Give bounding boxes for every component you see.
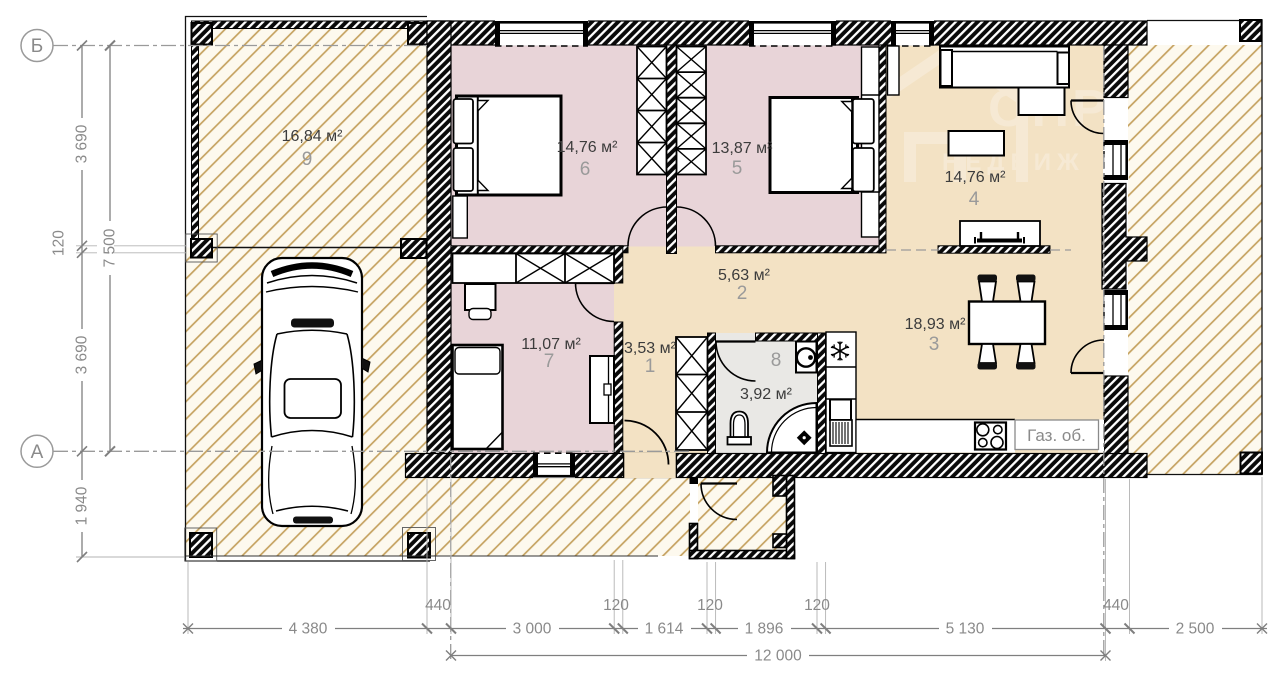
svg-text:3: 3 — [929, 334, 940, 355]
svg-text:120: 120 — [804, 597, 830, 614]
svg-text:14,76 м²: 14,76 м² — [945, 169, 1006, 186]
svg-text:440: 440 — [425, 597, 451, 614]
svg-text:3 690: 3 690 — [74, 335, 91, 374]
svg-text:9: 9 — [302, 149, 313, 170]
svg-text:4: 4 — [969, 189, 980, 210]
svg-text:120: 120 — [603, 597, 629, 614]
svg-text:14,76 м²: 14,76 м² — [557, 139, 618, 156]
svg-text:1: 1 — [645, 356, 656, 377]
svg-text:А: А — [31, 442, 44, 463]
svg-text:1 614: 1 614 — [645, 621, 684, 638]
svg-text:5,63 м²: 5,63 м² — [718, 267, 771, 284]
svg-text:2: 2 — [737, 283, 748, 304]
svg-text:1 940: 1 940 — [74, 486, 91, 525]
svg-text:7 500: 7 500 — [102, 228, 119, 267]
svg-text:13,87 м²: 13,87 м² — [712, 140, 773, 157]
svg-text:120: 120 — [51, 230, 68, 256]
svg-text:3,92 м²: 3,92 м² — [740, 386, 793, 403]
svg-text:18,93 м²: 18,93 м² — [905, 316, 966, 333]
svg-text:Газ. об.: Газ. об. — [1027, 426, 1086, 445]
svg-text:120: 120 — [697, 597, 723, 614]
svg-text:12 000: 12 000 — [754, 648, 802, 665]
svg-text:6: 6 — [580, 159, 591, 180]
svg-text:4 380: 4 380 — [289, 621, 328, 638]
svg-text:1 896: 1 896 — [745, 621, 784, 638]
svg-text:5 130: 5 130 — [946, 621, 985, 638]
svg-text:8: 8 — [771, 350, 782, 371]
svg-text:7: 7 — [544, 351, 555, 372]
svg-text:2 500: 2 500 — [1176, 621, 1215, 638]
svg-text:3 690: 3 690 — [74, 124, 91, 163]
svg-text:3,53 м²: 3,53 м² — [624, 340, 677, 357]
svg-text:3 000: 3 000 — [513, 621, 552, 638]
svg-text:16,84 м²: 16,84 м² — [282, 128, 343, 145]
svg-text:5: 5 — [732, 158, 743, 179]
svg-text:Б: Б — [31, 36, 43, 57]
svg-text:440: 440 — [1103, 597, 1129, 614]
